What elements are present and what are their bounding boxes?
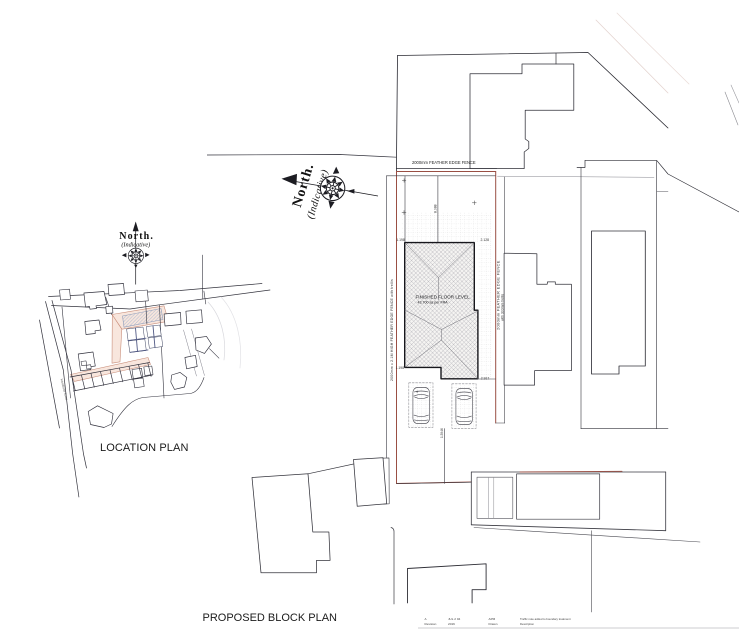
svg-text:2.128: 2.128 (481, 238, 490, 242)
svg-text:PROPOSED BLOCK PLAN: PROPOSED BLOCK PLAN (203, 612, 338, 624)
svg-text:LOCATION PLAN: LOCATION PLAN (100, 442, 189, 454)
svg-text:1.5946: 1.5946 (440, 428, 444, 438)
svg-text:2000mm x 2.1M HIGH FEATHER EDG: 2000mm x 2.1M HIGH FEATHER EDGE FENCE wi… (390, 279, 394, 381)
svg-text:(Indicative): (Indicative) (121, 241, 150, 248)
svg-text:2016: 2016 (448, 622, 455, 626)
svg-text:JUL 2 04: JUL 2 04 (448, 617, 461, 621)
svg-text:Drawn: Drawn (489, 622, 498, 626)
svg-text:APM: APM (489, 617, 496, 621)
svg-text:Traffic note added to boundary: Traffic note added to boundary treatment (520, 617, 571, 621)
svg-text:A: A (425, 617, 428, 621)
svg-text:1.198: 1.198 (396, 366, 405, 370)
svg-text:2000mm FEATHER EDGE FENCE: 2000mm FEATHER EDGE FENCE (412, 160, 476, 165)
svg-text:43.700 as per FRA: 43.700 as per FRA (418, 300, 449, 304)
svg-text:FINISHED FLOOR LEVEL: FINISHED FLOOR LEVEL (416, 294, 471, 299)
svg-text:Woodland Road: Woodland Road (60, 378, 69, 400)
svg-text:Revision: Revision (425, 622, 437, 626)
svg-text:8.088: 8.088 (434, 204, 438, 213)
svg-text:Description: Description (520, 622, 534, 626)
svg-text:2.917: 2.917 (481, 377, 490, 381)
svg-text:1.198: 1.198 (396, 238, 405, 242)
svg-text:North.: North. (119, 231, 154, 242)
